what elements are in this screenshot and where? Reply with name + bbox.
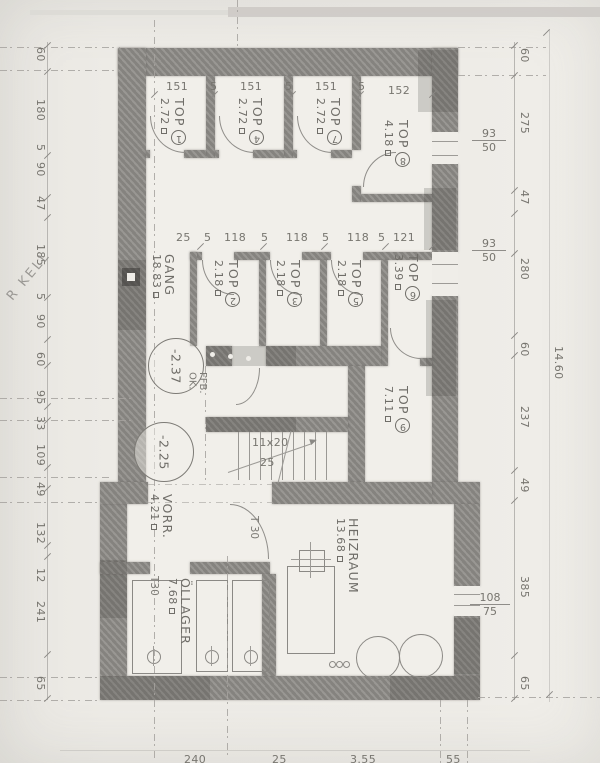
dim-chain-line	[549, 30, 550, 702]
room-label-heizraum: HEIZRAUM 13.68	[334, 518, 360, 594]
room-number-badge: 8	[395, 152, 410, 167]
room-number-badge: 5	[348, 292, 363, 307]
room-number-badge: 3	[287, 292, 302, 307]
sqm-symbol	[395, 284, 401, 290]
sqm-symbol	[385, 150, 391, 156]
dim-label: 121	[393, 231, 415, 244]
window-opening	[432, 252, 458, 296]
dim-label: 90	[34, 162, 47, 177]
window-glass-line	[432, 283, 458, 284]
boiler-flue	[299, 550, 325, 572]
axis-line	[458, 47, 546, 48]
dim-label: 49	[518, 478, 531, 493]
room-label-top8: TOP8 4.18	[382, 120, 410, 167]
room-label-top1: TOP1 2.72	[158, 98, 186, 145]
scan-shade-patch	[426, 300, 456, 396]
scan-shade-patch	[100, 676, 210, 700]
storage-tank	[399, 634, 443, 678]
room-label-top7: TOP7 2.72	[314, 98, 342, 145]
wall-segment	[118, 48, 458, 76]
dim-total-label: 14.60	[552, 346, 565, 380]
dim-label: 65	[518, 676, 531, 691]
dim-label: 5	[204, 231, 211, 244]
dim-label: 65	[34, 676, 47, 691]
room-label-gang: GANG 18.83	[150, 254, 176, 298]
wall-segment	[293, 150, 297, 158]
wall-segment	[234, 252, 270, 260]
room-number-badge: 6	[405, 286, 420, 301]
window-dim-label: 93 50	[472, 127, 506, 154]
wall-segment	[100, 482, 148, 504]
wall-segment	[272, 482, 432, 504]
room-number-badge: 2	[225, 292, 240, 307]
stair-tread	[238, 432, 239, 480]
dim-label: 25	[176, 231, 191, 244]
dim-label: 60	[34, 352, 47, 367]
boiler	[287, 566, 335, 654]
wall-vent-dot	[210, 352, 215, 357]
boiler-flue-cross	[291, 559, 331, 560]
dim-label: 12	[34, 568, 47, 583]
dim-chain-line	[60, 750, 530, 751]
dim-label: 109	[34, 444, 47, 466]
dim-label: 5	[322, 231, 329, 244]
axis-line	[237, 0, 238, 48]
stair-tread	[249, 432, 250, 480]
dim-label: 275	[518, 112, 531, 134]
wall-segment	[146, 150, 150, 158]
scan-shade-patch	[454, 618, 480, 674]
dim-chain-line	[514, 42, 515, 700]
stair-tread	[304, 432, 305, 480]
sqm-symbol	[161, 128, 167, 134]
wall-segment	[454, 504, 480, 586]
wall-vent-dot	[228, 354, 233, 359]
sqm-symbol	[385, 416, 391, 422]
room-label-top9: TOP9 7.11	[382, 386, 410, 433]
dim-label: 95	[34, 390, 47, 405]
dim-label: 280	[518, 258, 531, 280]
wall-segment	[190, 562, 270, 574]
stair-tread	[326, 432, 327, 480]
room-number-badge: 7	[327, 130, 342, 145]
window-glass-line	[432, 141, 458, 142]
wall-segment	[432, 482, 480, 504]
level-marker-note: OK. FFB.	[186, 372, 207, 394]
stair-dim-label: 25	[260, 456, 275, 469]
axis-line	[458, 75, 546, 76]
window-opening	[432, 132, 458, 164]
stair-tread	[293, 432, 294, 480]
room-label-top5: TOP5 2.18	[335, 260, 363, 307]
wall-segment	[348, 366, 365, 482]
axis-line	[0, 700, 100, 701]
wall-segment	[184, 150, 206, 158]
wall-segment	[361, 194, 432, 202]
sqm-symbol	[215, 290, 221, 296]
room-number-badge: 1	[171, 130, 186, 145]
wall-segment	[352, 186, 361, 202]
room-label-top3: TOP3 2.18	[274, 260, 302, 307]
axis-line	[478, 697, 600, 698]
dim-label: 385	[518, 576, 531, 598]
scan-shade-patch	[100, 560, 127, 618]
sqm-symbol	[169, 608, 175, 614]
dim-label: 47	[518, 190, 531, 205]
dim-label: 152	[388, 84, 410, 97]
wall-vent-dot	[246, 356, 251, 361]
level-marker-circle: -2.25	[134, 422, 194, 482]
room-label-oellager: ÖLLAGER 7.68	[166, 578, 192, 645]
dim-label: 60	[518, 48, 531, 63]
dim-label: 55	[446, 753, 461, 763]
dim-label: 60	[34, 47, 47, 62]
wall-segment	[253, 150, 284, 158]
axis-line	[0, 70, 120, 71]
wall-segment	[215, 150, 219, 158]
scan-shade-patch	[390, 676, 480, 700]
tank-valve-symbol	[205, 650, 219, 664]
sqm-symbol	[239, 128, 245, 134]
window-glass-line	[432, 264, 458, 265]
axis-line	[0, 398, 134, 399]
scan-artifact-band	[30, 10, 228, 15]
tank-valve-symbol	[250, 646, 251, 666]
wall-segment	[190, 252, 197, 346]
room-label-top6: TOP6 3.39	[392, 254, 420, 301]
room-number-badge: 9	[395, 418, 410, 433]
window-glass-line	[432, 155, 458, 156]
room-number-badge: 4	[249, 130, 264, 145]
pipe-dot	[343, 661, 350, 668]
dim-label: 237	[518, 406, 531, 428]
dim-label: 25	[272, 753, 287, 763]
sqm-symbol	[338, 290, 344, 296]
axis-line	[0, 47, 120, 48]
sqm-symbol	[317, 128, 323, 134]
pipe-dot	[329, 661, 336, 668]
dim-label: 90	[34, 314, 47, 329]
dim-label: 118	[224, 231, 246, 244]
dim-label: 60	[518, 342, 531, 357]
dim-label: 5	[378, 231, 385, 244]
sqm-symbol	[153, 292, 159, 298]
axis-line	[0, 677, 100, 678]
wall-niche-mark	[127, 273, 135, 281]
tank-valve-symbol	[244, 650, 258, 664]
scan-artifact-band	[228, 7, 600, 17]
window-dim-label: 93 50	[472, 237, 506, 264]
scan-shade-patch	[418, 50, 458, 112]
axis-line	[467, 700, 468, 763]
axis-line	[154, 20, 155, 760]
dim-label: 3.55	[350, 753, 376, 763]
wall-segment	[259, 260, 266, 346]
sqm-symbol	[337, 556, 343, 562]
wall-segment	[331, 150, 352, 158]
axis-line	[440, 700, 441, 763]
scan-shade-patch	[206, 346, 296, 366]
storage-tank	[356, 636, 400, 680]
axis-line	[227, 556, 228, 760]
axis-line	[0, 477, 112, 478]
dim-label: 151	[240, 80, 262, 93]
dim-label: 132	[34, 522, 47, 544]
window-dim-label: 108 75	[470, 591, 510, 618]
dim-label: 5	[285, 80, 292, 93]
dim-chain-line	[47, 42, 48, 700]
dim-label: 180	[34, 99, 47, 121]
fire-door-label: T 30	[248, 516, 260, 539]
sqm-symbol	[277, 290, 283, 296]
room-label-top4: TOP4 2.72	[236, 98, 264, 145]
scan-shade-patch	[424, 188, 456, 250]
axis-line	[0, 502, 100, 503]
floorplan-canvas: 11x20 25 -2.37 OK. FFB. -2.25 T 30 T30 T…	[0, 0, 600, 763]
pipe-dot	[336, 661, 343, 668]
dim-label: 5	[34, 144, 47, 151]
dim-label: 241	[34, 601, 47, 623]
wall-segment	[302, 252, 331, 260]
dim-label: 240	[184, 753, 206, 763]
passage-line	[148, 484, 272, 485]
boiler-flue-cross	[310, 542, 311, 578]
dim-label: 151	[166, 80, 188, 93]
scan-shade-patch	[206, 417, 296, 432]
dim-label: 151	[315, 80, 337, 93]
stair-dim-label: 11x20	[252, 436, 289, 449]
dim-label: 5	[261, 231, 268, 244]
wall-segment	[320, 260, 327, 346]
tank-valve-symbol	[211, 646, 212, 666]
dim-label: 118	[286, 231, 308, 244]
room-label-vorr: VORR. 4.21	[148, 494, 174, 539]
fire-door-label: T30	[148, 576, 160, 596]
axis-line	[0, 420, 134, 421]
wall-segment	[381, 260, 388, 366]
dim-label: 118	[347, 231, 369, 244]
sqm-symbol	[151, 524, 157, 530]
room-label-top2: TOP2 2.18	[212, 260, 240, 307]
